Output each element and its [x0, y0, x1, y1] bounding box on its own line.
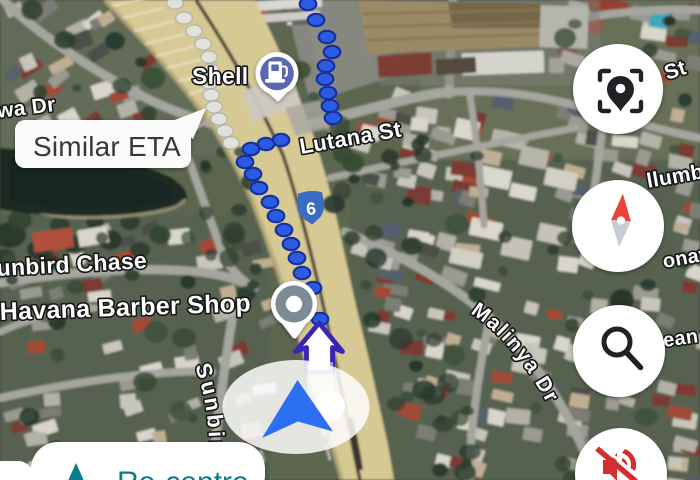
svg-text:6: 6 [306, 198, 317, 219]
svg-text:Similar ETA: Similar ETA [33, 131, 181, 162]
svg-text:Re-centre: Re-centre [117, 466, 249, 480]
svg-text:Shell: Shell [192, 63, 248, 89]
